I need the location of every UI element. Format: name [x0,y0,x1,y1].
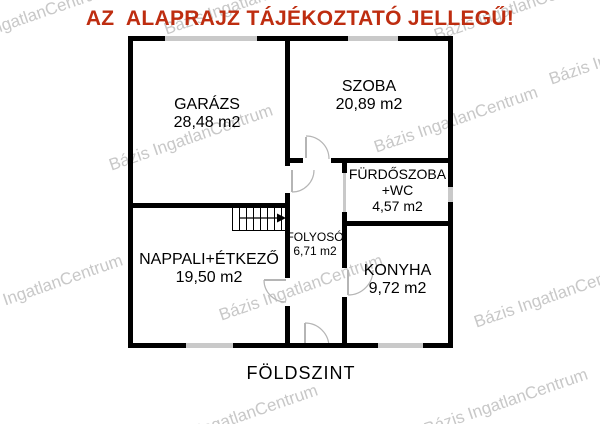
room-area: 6,71 m2 [293,244,336,258]
room-name: FOLYOSÓ [286,230,343,244]
room-name: FÜRDŐSZOBA [349,166,446,182]
window-konyha [378,343,423,348]
room-area: 20,89 m2 [336,96,403,113]
room-label-szoba: SZOBA 20,89 m2 [290,78,448,114]
wall-szoba-bottom-left [290,158,303,163]
wall-folyoso-right-bottom [342,297,347,343]
disclaimer-title: AZ ALAPRAJZ TÁJÉKOZTATÓ JELLEGŰ! [0,7,600,31]
room-label-garazs: GARÁZS 28,48 m2 [128,96,286,132]
staircase [232,204,286,231]
room-name: NAPPALI+ÉTKEZŐ [139,251,279,268]
wall-folyoso-left-lower [285,306,290,343]
stair-tread [274,205,275,230]
room-label-folyoso: FOLYOSÓ 6,71 m2 [285,230,345,258]
room-label-furdoszoba: FÜRDŐSZOBA +WC 4,57 m2 [347,166,448,214]
window-nappali [186,343,233,348]
window-szoba [348,36,398,41]
door-swing-szoba [306,136,329,159]
stair-tread [267,205,268,230]
door-furdoszoba [343,173,346,212]
wall-left [128,36,133,348]
doors-overlay [0,0,600,424]
stair-tread [253,205,254,230]
room-name: KONYHA [364,262,432,279]
floorplan-canvas: Bázis IngatlanCentrum Bázis IngatlanCent… [0,0,600,424]
stair-tread [260,205,261,230]
stair-tread [239,205,240,230]
room-name-extra: +WC [382,182,414,198]
stair-tread [246,205,247,230]
wall-szoba-bottom-right [331,158,448,163]
wall-furdoszoba-konyha [347,221,448,226]
room-label-nappali: NAPPALI+ÉTKEZŐ 19,50 m2 [133,251,285,287]
room-name: SZOBA [342,78,396,95]
floor-label: FÖLDSZINT [131,363,471,384]
window-furdoszoba [448,187,453,202]
room-area: 19,50 m2 [176,269,243,286]
room-area: 28,48 m2 [174,114,241,131]
window-garage [165,36,257,41]
room-name: GARÁZS [174,96,240,113]
wall-garage-nappali [133,203,285,208]
room-area: 4,57 m2 [372,198,423,214]
room-area: 9,72 m2 [369,280,427,297]
stair-tread [281,205,282,230]
room-label-konyha: KONYHA 9,72 m2 [347,262,448,298]
door-swing-garage [292,170,314,192]
